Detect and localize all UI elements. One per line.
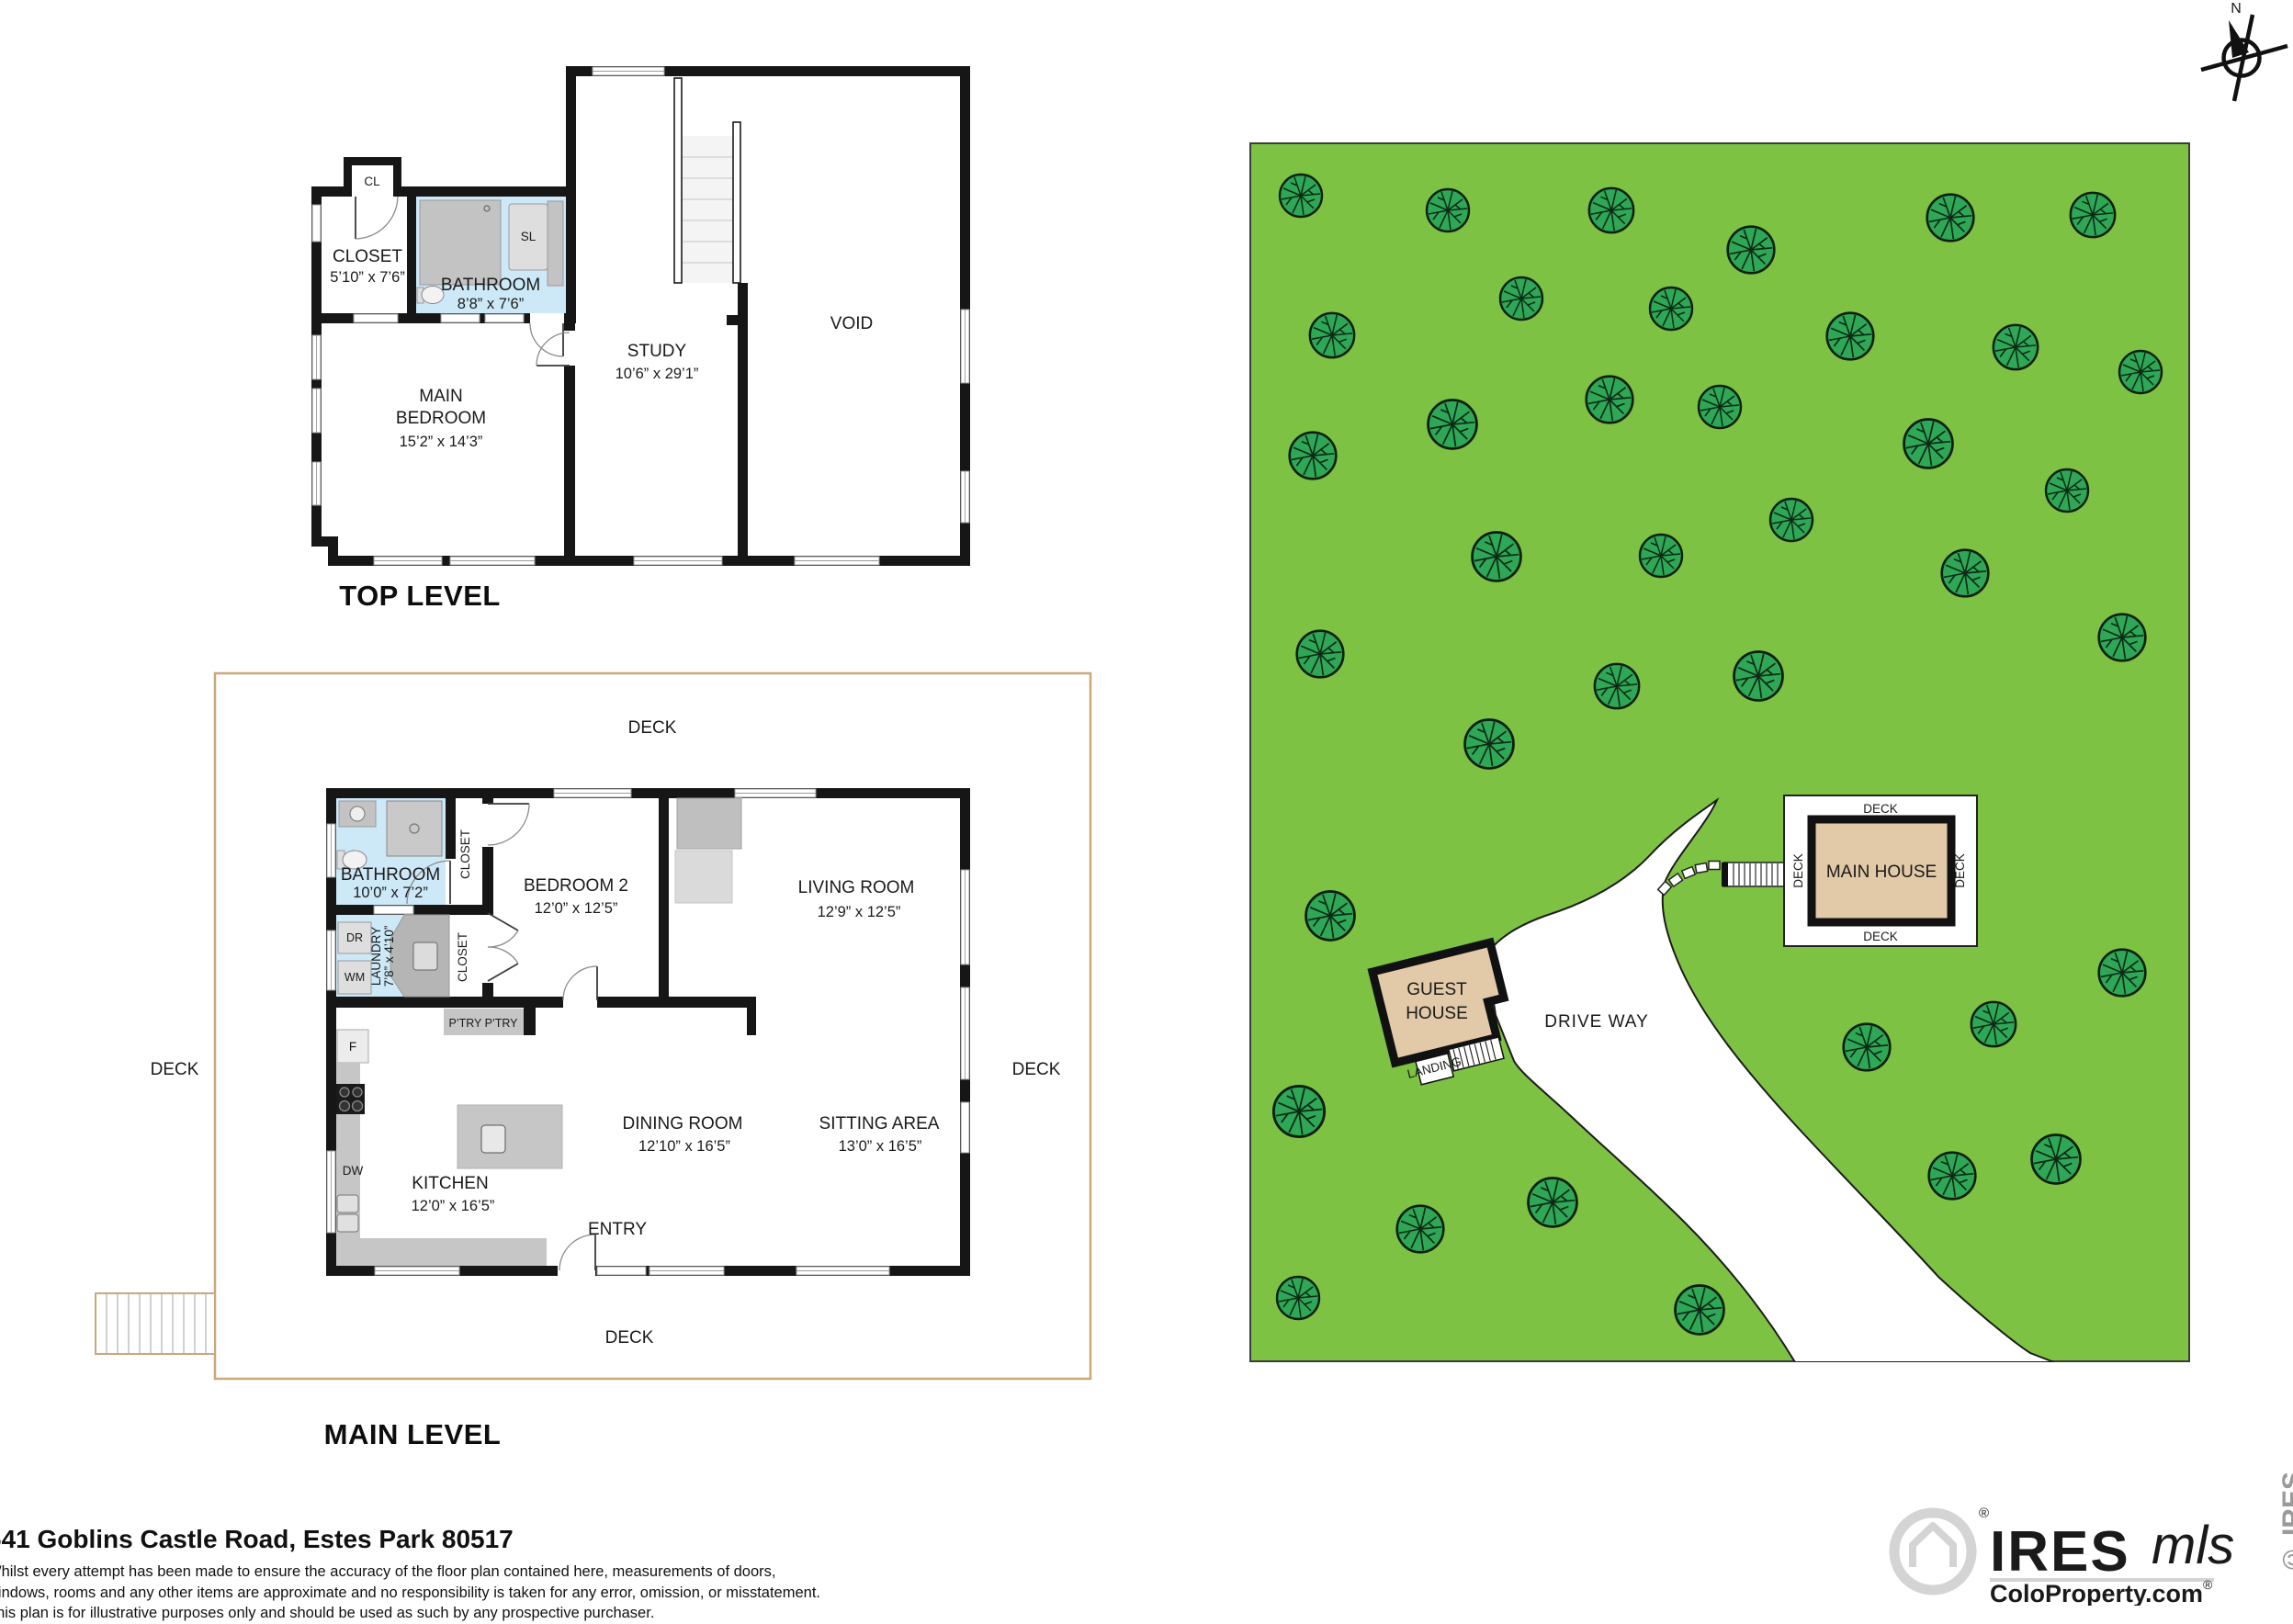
compass-icon: N	[2196, 0, 2293, 108]
main-level-floorplan: DECK DECK DECK DECK BATHROOM 10’0” x 7’2…	[92, 671, 1102, 1460]
disclaimer-line-3: This plan is for illustrative purposes o…	[0, 1603, 820, 1624]
top-bathroom-dims: 8’8” x 7’6”	[457, 296, 524, 312]
tree-icon	[1699, 386, 1741, 428]
tree-icon	[1500, 277, 1542, 320]
tree-icon	[1650, 288, 1692, 330]
sink-icon	[337, 1214, 358, 1232]
kitchen-name: KITCHEN	[412, 1174, 488, 1193]
cl-label: CL	[364, 175, 380, 188]
tree-icon	[1589, 188, 1633, 232]
tree-icon	[2099, 615, 2146, 661]
dining-dims: 12’10” x 16’5”	[638, 1138, 730, 1155]
kitchen-dims: 12’0” x 16’5”	[412, 1198, 495, 1214]
laundry-dims: 7’8” x 4’10”	[382, 926, 396, 987]
top-level-floorplan: CL CLOSET 5’10” x 7’6” SL BATHROOM 8’8” …	[303, 51, 983, 625]
registered-mark: ®	[1979, 1506, 1989, 1521]
site-plan: MAIN HOUSE DECK DECK DECK DECK LANDING G…	[1249, 142, 2190, 1362]
tree-icon	[2119, 351, 2162, 393]
tree-icon	[2046, 469, 2088, 512]
ml-bathroom-name: BATHROOM	[341, 865, 440, 885]
tree-icon	[1429, 400, 1477, 449]
entry-label: ENTRY	[588, 1220, 647, 1239]
shower-icon	[420, 200, 501, 285]
tree-icon	[1465, 720, 1514, 769]
tree-icon	[1770, 499, 1813, 541]
coloproperty-text: ColoProperty.com	[1990, 1580, 2203, 1606]
tree-icon	[1676, 1286, 1724, 1335]
deck-label-left: DECK	[1791, 853, 1805, 888]
tree-icon	[1728, 227, 1775, 274]
tree-icon	[1734, 652, 1783, 701]
tree-icon	[1827, 313, 1874, 360]
laundry-name: LAUNDRY	[369, 927, 383, 986]
tree-icon	[2032, 1135, 2081, 1184]
tree-icon	[1310, 313, 1354, 357]
sink-icon	[337, 1195, 358, 1212]
fridge-label: F	[349, 1040, 356, 1054]
tree-icon	[1306, 892, 1355, 941]
study-name: STUDY	[627, 342, 687, 361]
dining-name: DINING ROOM	[623, 1114, 743, 1133]
tree-icon	[1397, 1206, 1444, 1253]
main-bedroom-name-line1: MAIN	[419, 387, 463, 406]
tree-icon	[1473, 533, 1521, 581]
closet-lower-label: CLOSET	[456, 932, 469, 982]
kitchen-counter-bottom-icon	[336, 1238, 547, 1266]
vanity-icon	[548, 201, 563, 286]
dishwasher-label: DW	[343, 1164, 364, 1178]
main-house-steps-icon	[1722, 863, 1784, 886]
washer-label: WM	[345, 971, 365, 984]
void-label: VOID	[830, 314, 873, 333]
tree-icon	[1529, 1179, 1577, 1227]
sitting-name: SITTING AREA	[819, 1114, 940, 1133]
guest-house-label-line1: GUEST	[1406, 980, 1467, 999]
bedroom2-name: BEDROOM 2	[524, 876, 628, 896]
tree-icon	[1273, 1086, 1324, 1136]
deck-stairs-icon	[96, 1293, 215, 1354]
sl-label: SL	[521, 230, 537, 243]
laundry-sink-icon	[413, 942, 437, 970]
compass-north-label: N	[2231, 1, 2242, 17]
sofa-icon	[677, 798, 741, 849]
kitchen-island-icon	[457, 1105, 562, 1168]
top-closet-name: CLOSET	[333, 247, 402, 266]
tree-icon	[1280, 175, 1322, 217]
main-level-title: MAIN LEVEL	[324, 1418, 502, 1450]
main-house: MAIN HOUSE DECK DECK DECK DECK	[1784, 795, 1977, 946]
property-address: 641 Goblins Castle Road, Estes Park 8051…	[0, 1525, 820, 1554]
deck-label-top: DECK	[1863, 802, 1898, 816]
main-house-label: MAIN HOUSE	[1826, 863, 1937, 882]
tree-icon	[1927, 195, 1974, 242]
deck-label-left: DECK	[151, 1060, 199, 1079]
top-closet-dims: 5’10” x 7’6”	[330, 269, 405, 286]
sitting-dims: 13’0” x 16’5”	[839, 1138, 922, 1155]
tree-icon	[2071, 193, 2115, 237]
main-bedroom-name-line2: BEDROOM	[396, 409, 486, 428]
stairs-icon	[674, 78, 740, 283]
ires-logo-text: IRES	[1990, 1520, 2130, 1584]
ml-bathroom-dims: 10’0” x 7’2”	[353, 885, 428, 901]
living-name: LIVING ROOM	[798, 878, 915, 897]
house-icon	[1913, 1526, 1953, 1567]
closet-upper-label: CLOSET	[458, 829, 472, 879]
island-sink-icon	[481, 1125, 505, 1153]
copyright-side-mark: © IRES	[2277, 1472, 2293, 1573]
top-bathroom-name: BATHROOM	[441, 276, 540, 295]
top-level-title: TOP LEVEL	[339, 580, 501, 612]
shower-icon	[387, 801, 442, 856]
sink-icon	[350, 806, 365, 821]
registered-mark: ®	[2203, 1577, 2213, 1592]
tree-icon	[1427, 189, 1469, 231]
mls-logo-text: mls	[2152, 1516, 2234, 1575]
tree-icon	[1595, 664, 1639, 708]
living-room-furniture	[675, 798, 741, 903]
tree-icon	[1844, 1024, 1891, 1071]
disclaimer-line-2: windows, rooms and any other items are a…	[0, 1583, 820, 1604]
deck-label-right: DECK	[1012, 1060, 1061, 1079]
bedroom2-dims: 12’0” x 12’5”	[535, 900, 618, 917]
ires-watermark-logo: ® IRES mls ColoProperty.com ®	[1881, 1497, 2276, 1606]
guest-house-label-line2: HOUSE	[1406, 1004, 1468, 1023]
living-dims: 12’9” x 12’5”	[818, 904, 901, 920]
tree-icon	[1994, 325, 2038, 369]
deck-label-right: DECK	[1953, 853, 1967, 888]
study-dims: 10’6” x 29’1”	[616, 366, 699, 382]
tree-icon	[1929, 1153, 1976, 1200]
tree-icon	[1277, 1277, 1319, 1319]
driveway-label: DRIVE WAY	[1544, 1012, 1649, 1032]
tree-icon	[1904, 420, 1953, 468]
pantry-label: P’TRY P’TRY	[448, 1017, 518, 1030]
tree-icon	[1942, 550, 1989, 597]
dryer-label: DR	[346, 931, 363, 944]
tree-icon	[2099, 950, 2146, 997]
main-bedroom-dims: 15’2” x 14’3”	[400, 434, 483, 450]
deck-label-top: DECK	[628, 718, 677, 738]
footer-text-block: 641 Goblins Castle Road, Estes Park 8051…	[0, 1525, 820, 1624]
tree-icon	[1290, 433, 1337, 479]
tree-icon	[1640, 535, 1682, 577]
rug-icon	[675, 851, 732, 903]
tree-icon	[1297, 631, 1344, 678]
tree-icon	[1587, 377, 1633, 423]
tree-icon	[1971, 1002, 2016, 1046]
disclaimer-line-1: Whilst every attempt has been made to en…	[0, 1562, 820, 1583]
deck-label-bottom: DECK	[605, 1328, 654, 1348]
deck-label-bottom: DECK	[1863, 930, 1898, 943]
